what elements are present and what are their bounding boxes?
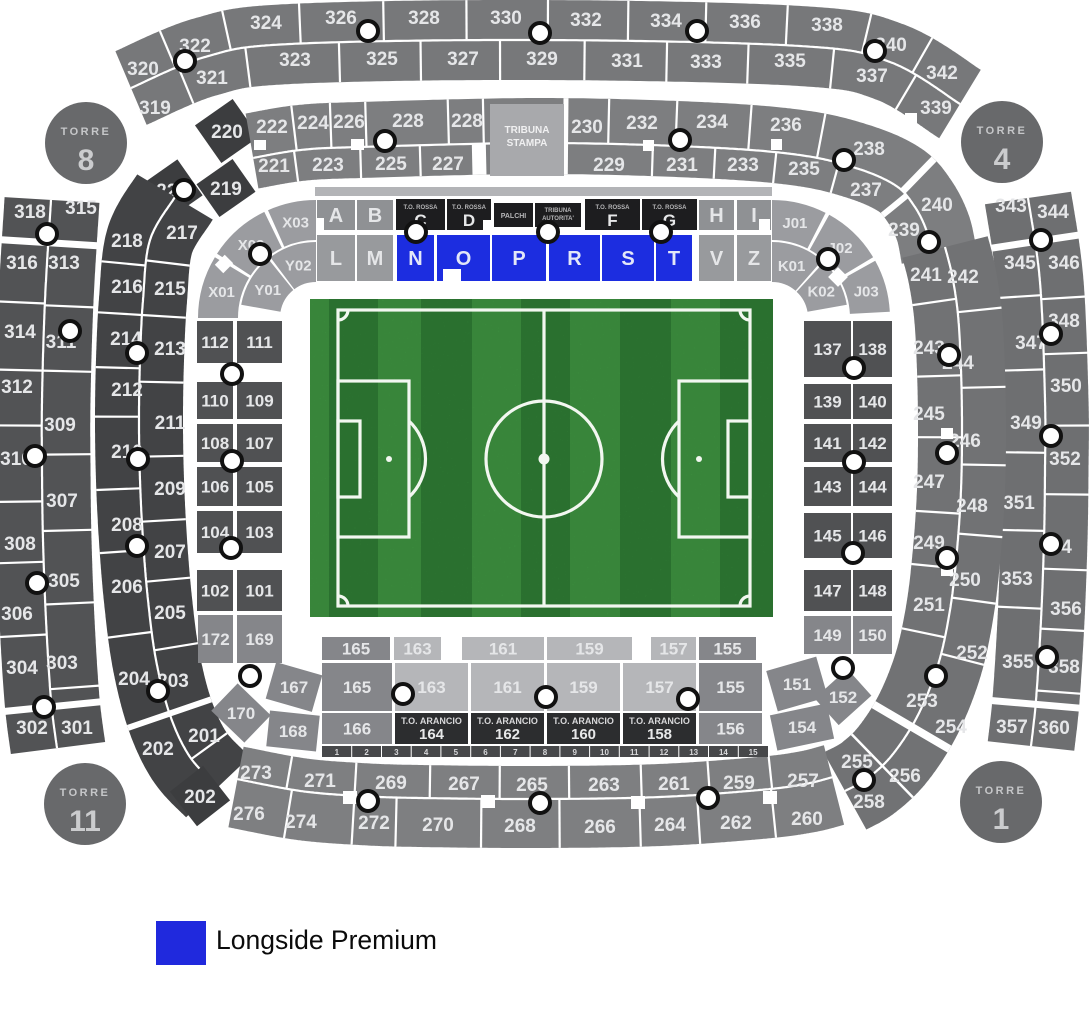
svg-text:247: 247 [913, 472, 945, 493]
svg-text:151: 151 [783, 675, 811, 694]
svg-text:1: 1 [335, 748, 340, 757]
svg-text:Z: Z [748, 248, 760, 270]
svg-text:161: 161 [493, 678, 521, 697]
svg-text:212: 212 [111, 380, 143, 401]
svg-text:161: 161 [489, 640, 517, 659]
svg-text:169: 169 [245, 630, 273, 649]
svg-text:Longside Premium: Longside Premium [216, 925, 437, 955]
svg-text:Y01: Y01 [254, 282, 281, 299]
svg-text:140: 140 [858, 393, 886, 412]
svg-text:204: 204 [118, 669, 150, 690]
svg-text:302: 302 [16, 718, 48, 739]
svg-text:315: 315 [65, 198, 97, 219]
svg-text:237: 237 [850, 180, 882, 201]
svg-text:301: 301 [61, 718, 93, 739]
svg-text:357: 357 [996, 717, 1028, 738]
svg-text:160: 160 [571, 726, 596, 743]
svg-text:142: 142 [858, 434, 886, 453]
svg-text:O: O [456, 248, 472, 270]
svg-text:256: 256 [889, 766, 921, 787]
svg-text:343: 343 [995, 196, 1027, 217]
svg-text:272: 272 [358, 813, 390, 834]
svg-text:3: 3 [394, 748, 399, 757]
svg-text:X03: X03 [282, 215, 309, 232]
svg-text:TORRE: TORRE [976, 785, 1027, 797]
svg-text:207: 207 [154, 542, 186, 563]
svg-text:270: 270 [422, 815, 454, 836]
svg-text:344: 344 [1037, 202, 1069, 223]
svg-text:I: I [751, 205, 757, 227]
svg-text:112: 112 [201, 333, 228, 352]
svg-text:157: 157 [659, 640, 687, 659]
svg-text:353: 353 [1001, 569, 1033, 590]
svg-text:220: 220 [211, 122, 243, 143]
svg-text:232: 232 [626, 113, 658, 134]
svg-text:223: 223 [312, 155, 344, 176]
svg-text:2: 2 [364, 748, 369, 757]
svg-text:143: 143 [813, 478, 841, 497]
svg-text:4: 4 [994, 143, 1011, 176]
svg-text:9: 9 [572, 748, 577, 757]
svg-text:Y02: Y02 [285, 257, 312, 274]
svg-text:A: A [329, 205, 343, 227]
svg-text:5: 5 [454, 748, 459, 757]
svg-text:355: 355 [1002, 652, 1034, 673]
svg-text:335: 335 [774, 51, 806, 72]
svg-text:202: 202 [184, 787, 216, 808]
svg-text:352: 352 [1049, 449, 1081, 470]
svg-text:T.O. ARANCIO: T.O. ARANCIO [477, 716, 538, 726]
svg-text:274: 274 [285, 812, 317, 833]
svg-text:273: 273 [240, 763, 272, 784]
svg-text:T.O. ARANCIO: T.O. ARANCIO [553, 716, 614, 726]
svg-text:15: 15 [749, 748, 758, 757]
svg-text:227: 227 [432, 154, 464, 175]
svg-text:167: 167 [280, 678, 308, 697]
svg-text:313: 313 [48, 253, 80, 274]
svg-text:339: 339 [920, 98, 952, 119]
svg-text:271: 271 [304, 771, 336, 792]
svg-text:T: T [668, 248, 680, 270]
svg-text:TORRE: TORRE [61, 126, 112, 138]
svg-text:208: 208 [111, 515, 143, 536]
svg-text:K01: K01 [778, 258, 806, 275]
svg-text:345: 345 [1004, 253, 1036, 274]
svg-text:211: 211 [155, 413, 186, 434]
svg-text:4: 4 [424, 748, 429, 757]
svg-text:165: 165 [342, 640, 370, 659]
svg-text:224: 224 [297, 113, 329, 134]
svg-text:J03: J03 [854, 283, 879, 300]
svg-text:13: 13 [689, 748, 698, 757]
svg-text:228: 228 [392, 111, 424, 132]
svg-text:320: 320 [127, 59, 159, 80]
svg-text:307: 307 [46, 491, 78, 512]
svg-text:338: 338 [811, 15, 843, 36]
svg-text:346: 346 [1048, 253, 1080, 274]
svg-text:312: 312 [1, 377, 33, 398]
svg-text:349: 349 [1010, 413, 1042, 434]
svg-text:332: 332 [570, 10, 602, 31]
svg-text:155: 155 [716, 678, 744, 697]
svg-text:251: 251 [913, 595, 945, 616]
svg-text:263: 263 [588, 775, 620, 796]
svg-text:206: 206 [111, 577, 143, 598]
svg-text:108: 108 [201, 434, 229, 453]
svg-text:T.O. ARANCIO: T.O. ARANCIO [629, 716, 690, 726]
svg-text:11: 11 [69, 805, 101, 838]
svg-text:V: V [710, 248, 724, 270]
svg-text:252: 252 [956, 643, 988, 664]
svg-text:321: 321 [196, 68, 228, 89]
svg-text:326: 326 [325, 8, 357, 29]
svg-text:154: 154 [788, 718, 817, 737]
svg-text:323: 323 [279, 50, 311, 71]
svg-text:M: M [367, 248, 384, 270]
svg-text:254: 254 [935, 717, 967, 738]
svg-text:213: 213 [154, 339, 186, 360]
svg-text:168: 168 [279, 722, 307, 741]
svg-text:109: 109 [245, 392, 273, 411]
svg-text:147: 147 [813, 582, 841, 601]
svg-text:215: 215 [154, 279, 186, 300]
svg-text:234: 234 [696, 112, 728, 133]
svg-text:337: 337 [856, 66, 888, 87]
svg-text:351: 351 [1003, 493, 1035, 514]
svg-text:319: 319 [139, 98, 171, 119]
svg-text:1: 1 [993, 803, 1010, 836]
svg-text:TRIBUNA: TRIBUNA [545, 208, 573, 214]
svg-text:101: 101 [245, 582, 273, 601]
svg-text:328: 328 [408, 8, 440, 29]
svg-text:233: 233 [727, 155, 759, 176]
svg-text:303: 303 [46, 653, 78, 674]
svg-text:257: 257 [787, 771, 819, 792]
svg-text:139: 139 [813, 393, 841, 412]
svg-text:H: H [709, 205, 723, 227]
svg-text:S: S [621, 248, 634, 270]
svg-text:STAMPA: STAMPA [507, 138, 548, 149]
svg-text:8: 8 [78, 144, 95, 177]
svg-text:334: 334 [650, 11, 682, 32]
svg-text:240: 240 [921, 195, 953, 216]
svg-text:TORRE: TORRE [60, 787, 111, 799]
svg-text:163: 163 [403, 640, 431, 659]
svg-text:159: 159 [575, 640, 603, 659]
svg-text:150: 150 [858, 626, 886, 645]
svg-text:360: 360 [1038, 718, 1070, 739]
svg-text:205: 205 [154, 603, 186, 624]
svg-text:L: L [330, 248, 342, 270]
svg-text:267: 267 [448, 774, 480, 795]
svg-text:259: 259 [723, 773, 755, 794]
svg-text:TORRE: TORRE [977, 125, 1028, 137]
svg-text:201: 201 [188, 726, 220, 747]
svg-text:222: 222 [256, 117, 288, 138]
svg-text:107: 107 [245, 434, 273, 453]
svg-text:141: 141 [813, 434, 841, 453]
svg-text:144: 144 [858, 478, 887, 497]
svg-text:D: D [463, 211, 475, 230]
svg-text:316: 316 [6, 253, 38, 274]
svg-text:253: 253 [906, 691, 938, 712]
svg-text:333: 333 [690, 52, 722, 73]
svg-text:106: 106 [201, 478, 229, 497]
svg-text:8: 8 [543, 748, 548, 757]
svg-text:X01: X01 [208, 284, 235, 301]
svg-text:137: 137 [813, 340, 841, 359]
svg-text:250: 250 [949, 570, 981, 591]
svg-text:170: 170 [227, 704, 255, 723]
svg-text:336: 336 [729, 12, 761, 33]
svg-text:218: 218 [111, 231, 143, 252]
svg-text:103: 103 [245, 523, 273, 542]
svg-text:T.O. ARANCIO: T.O. ARANCIO [401, 716, 462, 726]
svg-text:242: 242 [947, 267, 979, 288]
svg-text:N: N [408, 248, 422, 270]
svg-text:14: 14 [719, 748, 728, 757]
svg-text:304: 304 [6, 658, 38, 679]
svg-text:269: 269 [375, 773, 407, 794]
svg-text:229: 229 [593, 155, 625, 176]
svg-text:228: 228 [451, 111, 483, 132]
svg-text:138: 138 [858, 340, 886, 359]
svg-text:R: R [567, 248, 582, 270]
svg-text:329: 329 [526, 49, 558, 70]
svg-text:350: 350 [1050, 376, 1082, 397]
svg-text:F: F [607, 211, 617, 230]
svg-text:325: 325 [366, 49, 398, 70]
svg-text:221: 221 [258, 156, 290, 177]
svg-text:159: 159 [569, 678, 597, 697]
svg-text:248: 248 [956, 496, 988, 517]
svg-text:145: 145 [813, 527, 841, 546]
svg-text:163: 163 [417, 678, 445, 697]
svg-text:324: 324 [250, 13, 282, 34]
svg-text:165: 165 [343, 678, 371, 697]
svg-text:342: 342 [926, 63, 958, 84]
svg-text:235: 235 [788, 159, 820, 180]
svg-text:309: 309 [44, 415, 76, 436]
svg-text:172: 172 [201, 630, 229, 649]
svg-text:152: 152 [829, 688, 857, 707]
svg-text:J01: J01 [782, 215, 807, 232]
svg-text:276: 276 [233, 804, 265, 825]
svg-text:110: 110 [201, 392, 228, 411]
svg-text:258: 258 [853, 792, 885, 813]
svg-text:149: 149 [813, 626, 841, 645]
svg-text:209: 209 [154, 479, 186, 500]
svg-text:330: 330 [490, 8, 522, 29]
svg-text:305: 305 [48, 571, 80, 592]
svg-text:K02: K02 [807, 284, 835, 301]
svg-text:11: 11 [630, 748, 639, 757]
svg-text:7: 7 [513, 748, 518, 757]
svg-text:239: 239 [888, 220, 920, 241]
svg-text:314: 314 [4, 322, 36, 343]
svg-text:306: 306 [1, 604, 33, 625]
svg-text:146: 146 [858, 527, 886, 546]
svg-text:327: 327 [447, 49, 479, 70]
svg-text:111: 111 [246, 333, 273, 352]
svg-text:266: 266 [584, 817, 616, 838]
svg-text:356: 356 [1050, 599, 1082, 620]
svg-text:105: 105 [245, 478, 273, 497]
svg-text:230: 230 [571, 117, 603, 138]
svg-text:157: 157 [645, 678, 673, 697]
svg-text:156: 156 [716, 720, 744, 739]
svg-text:158: 158 [647, 726, 672, 743]
svg-text:155: 155 [713, 640, 741, 659]
svg-text:241: 241 [910, 265, 942, 286]
svg-text:217: 217 [166, 223, 198, 244]
svg-text:102: 102 [201, 582, 229, 601]
svg-text:236: 236 [770, 115, 802, 136]
svg-text:245: 245 [913, 404, 945, 425]
svg-text:PALCHI: PALCHI [501, 213, 527, 220]
svg-text:148: 148 [858, 582, 886, 601]
svg-text:TRIBUNA: TRIBUNA [505, 125, 550, 136]
svg-text:B: B [368, 205, 382, 227]
svg-text:261: 261 [658, 774, 690, 795]
svg-text:202: 202 [142, 739, 174, 760]
svg-text:238: 238 [853, 139, 885, 160]
svg-text:226: 226 [333, 112, 365, 133]
svg-text:12: 12 [659, 748, 668, 757]
svg-text:164: 164 [419, 726, 445, 743]
svg-text:216: 216 [111, 277, 143, 298]
svg-text:P: P [512, 248, 525, 270]
svg-text:6: 6 [483, 748, 488, 757]
svg-text:231: 231 [666, 155, 698, 176]
svg-text:225: 225 [375, 154, 407, 175]
svg-text:331: 331 [611, 51, 643, 72]
svg-text:162: 162 [495, 726, 520, 743]
svg-text:268: 268 [504, 816, 536, 837]
svg-text:10: 10 [600, 748, 609, 757]
svg-text:264: 264 [654, 815, 686, 836]
svg-text:262: 262 [720, 813, 752, 834]
svg-text:318: 318 [14, 202, 46, 223]
svg-text:260: 260 [791, 809, 823, 830]
svg-text:166: 166 [343, 720, 371, 739]
svg-text:308: 308 [4, 534, 36, 555]
svg-text:219: 219 [210, 179, 242, 200]
